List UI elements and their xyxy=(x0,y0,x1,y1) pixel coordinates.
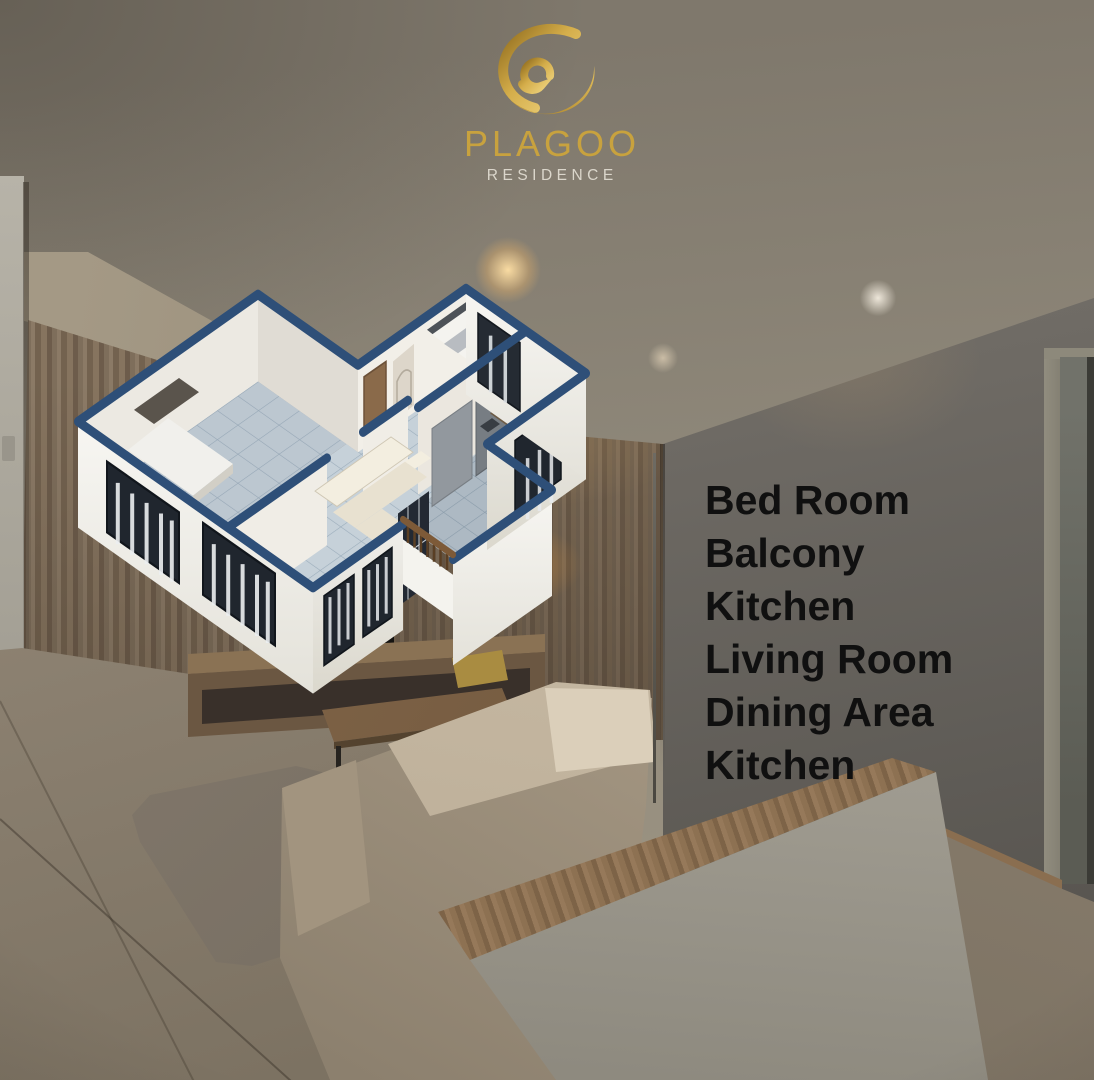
room-list: Bed Room Balcony Kitchen Living Room Din… xyxy=(705,474,953,792)
brand-subtitle: RESIDENCE xyxy=(390,168,710,184)
room-list-item: Living Room xyxy=(705,633,953,686)
divider-line xyxy=(653,453,656,803)
poster: PLAGOO RESIDENCE Bed Room Balcony Kitche… xyxy=(0,0,1094,1080)
room-list-item: Dining Area xyxy=(705,686,953,739)
flame-swirl-icon xyxy=(488,20,612,124)
room-list-item: Kitchen xyxy=(705,580,953,633)
room-list-item: Kitchen xyxy=(705,739,953,792)
floor-plan-illustration xyxy=(72,252,602,782)
brand-name: PLAGOO xyxy=(390,126,710,162)
brand-logo: PLAGOO RESIDENCE xyxy=(390,20,710,184)
room-list-item: Balcony xyxy=(705,527,953,580)
room-list-item: Bed Room xyxy=(705,474,953,527)
